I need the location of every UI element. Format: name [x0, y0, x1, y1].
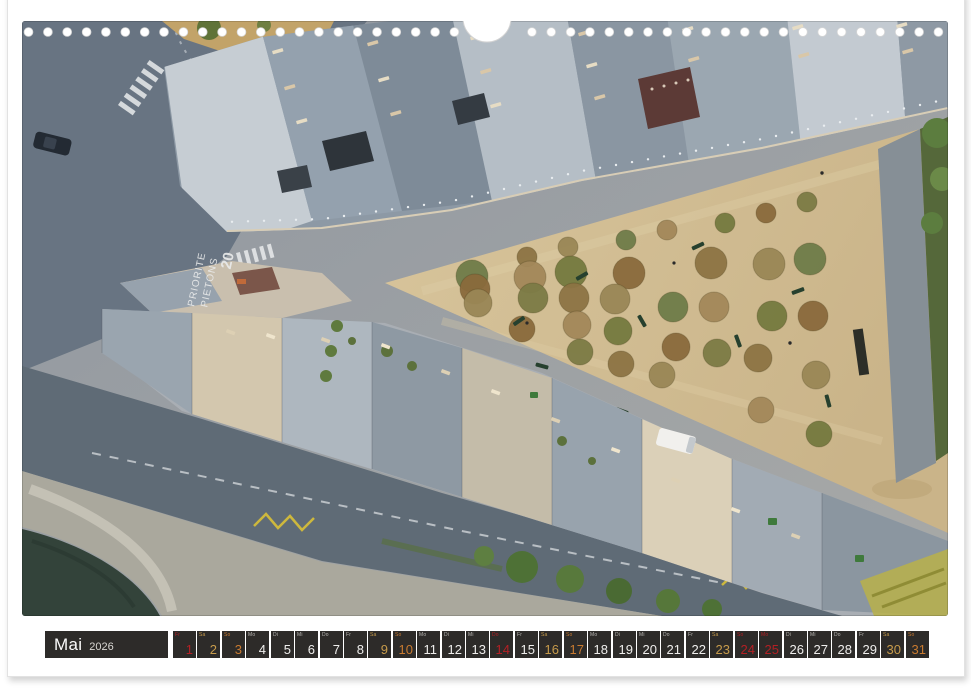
day-cell-22: Fr22	[686, 631, 709, 658]
day-weekday-label: So	[224, 633, 231, 638]
day-cell-16: Sa16	[539, 631, 562, 658]
day-cell-23: Sa23	[710, 631, 733, 658]
day-weekday-label: Mo	[248, 633, 255, 638]
day-cell-12: Di12	[442, 631, 465, 658]
day-cell-25: Mo25	[759, 631, 782, 658]
day-weekday-label: Di	[273, 633, 278, 638]
day-cell-6: Mi6	[295, 631, 318, 658]
day-weekday-label: Do	[834, 633, 841, 638]
day-number: 1	[186, 643, 193, 656]
day-weekday-label: Fr	[859, 633, 864, 638]
day-weekday-label: Do	[322, 633, 329, 638]
day-cell-15: Fr15	[515, 631, 538, 658]
orange-awning	[237, 279, 246, 284]
day-cell-26: Di26	[784, 631, 807, 658]
day-number: 23	[716, 643, 730, 656]
day-weekday-label: Sa	[712, 633, 719, 638]
day-cell-1: Fr1	[173, 631, 196, 658]
day-number: 30	[887, 643, 901, 656]
aerial-photo: PRIORITE PIETONS 20	[22, 21, 948, 616]
day-cell-13: Mi13	[466, 631, 489, 658]
day-weekday-label: Sa	[370, 633, 377, 638]
day-weekday-label: Do	[663, 633, 670, 638]
day-weekday-label: Mo	[590, 633, 597, 638]
day-number: 17	[570, 643, 584, 656]
day-cell-5: Di5	[271, 631, 294, 658]
day-weekday-label: Sa	[199, 633, 206, 638]
day-number: 9	[381, 643, 388, 656]
day-number: 27	[814, 643, 828, 656]
day-cell-30: Sa30	[881, 631, 904, 658]
day-weekday-label: So	[566, 633, 573, 638]
day-cell-8: Fr8	[344, 631, 367, 658]
day-weekday-label: Mi	[639, 633, 645, 638]
day-weekday-label: Mi	[810, 633, 816, 638]
day-number: 26	[790, 643, 804, 656]
day-weekday-label: Sa	[883, 633, 890, 638]
day-weekday-label: So	[908, 633, 915, 638]
day-number: 24	[741, 643, 755, 656]
day-number: 20	[643, 643, 657, 656]
year-label: 2026	[89, 642, 113, 653]
day-number: 31	[912, 643, 926, 656]
day-number: 14	[496, 643, 510, 656]
day-weekday-label: Di	[786, 633, 791, 638]
day-number: 25	[765, 643, 779, 656]
day-weekday-label: Fr	[175, 633, 180, 638]
day-number: 7	[333, 643, 340, 656]
month-name: Mai	[54, 636, 82, 653]
day-cell-27: Mi27	[808, 631, 831, 658]
day-weekday-label: Fr	[688, 633, 693, 638]
day-weekday-label: Fr	[517, 633, 522, 638]
day-cell-24: So24	[735, 631, 758, 658]
day-cell-20: Mi20	[637, 631, 660, 658]
day-number: 3	[235, 643, 242, 656]
day-number: 11	[424, 643, 438, 656]
day-cell-28: Do28	[832, 631, 855, 658]
day-number: 2	[210, 643, 217, 656]
day-cell-29: Fr29	[857, 631, 880, 658]
day-number: 21	[667, 643, 681, 656]
day-number: 29	[863, 643, 877, 656]
day-cell-21: Do21	[661, 631, 684, 658]
day-cell-11: Mo11	[417, 631, 440, 658]
day-weekday-label: Fr	[346, 633, 351, 638]
day-number: 13	[472, 643, 486, 656]
day-number: 8	[357, 643, 364, 656]
road-text-20: 20	[218, 251, 238, 271]
day-cell-2: Sa2	[197, 631, 220, 658]
month-label-box: Mai 2026	[45, 631, 168, 658]
day-cell-9: Sa9	[368, 631, 391, 658]
day-cell-4: Mo4	[246, 631, 269, 658]
day-weekday-label: Mi	[468, 633, 474, 638]
day-number: 4	[259, 643, 266, 656]
day-number: 22	[692, 643, 706, 656]
day-weekday-label: So	[737, 633, 744, 638]
day-number: 5	[284, 643, 291, 656]
day-number: 18	[594, 643, 608, 656]
day-cell-7: Do7	[320, 631, 343, 658]
day-number: 28	[838, 643, 852, 656]
day-cell-10: So10	[393, 631, 416, 658]
day-weekday-label: Do	[492, 633, 499, 638]
day-weekday-label: Di	[444, 633, 449, 638]
day-weekday-label: Mi	[297, 633, 303, 638]
day-number: 19	[619, 643, 633, 656]
calendar-mockup: PRIORITE PIETONS 20 Mai 2026 Fr1Sa2So3Mo…	[0, 0, 971, 700]
day-weekday-label: So	[395, 633, 402, 638]
day-cell-14: Do14	[490, 631, 513, 658]
day-weekday-label: Mo	[419, 633, 426, 638]
day-cell-31: So31	[906, 631, 929, 658]
day-weekday-label: Sa	[541, 633, 548, 638]
day-number: 10	[399, 643, 413, 656]
day-cell-19: Di19	[613, 631, 636, 658]
aerial-photo-art: PRIORITE PIETONS 20	[22, 21, 948, 616]
day-cell-18: Mo18	[588, 631, 611, 658]
day-weekday-label: Di	[615, 633, 620, 638]
day-cell-3: So3	[222, 631, 245, 658]
day-weekday-label: Mo	[761, 633, 768, 638]
day-number: 12	[448, 643, 462, 656]
day-cell-17: So17	[564, 631, 587, 658]
day-number: 16	[545, 643, 559, 656]
day-number: 15	[521, 643, 535, 656]
day-number: 6	[308, 643, 315, 656]
